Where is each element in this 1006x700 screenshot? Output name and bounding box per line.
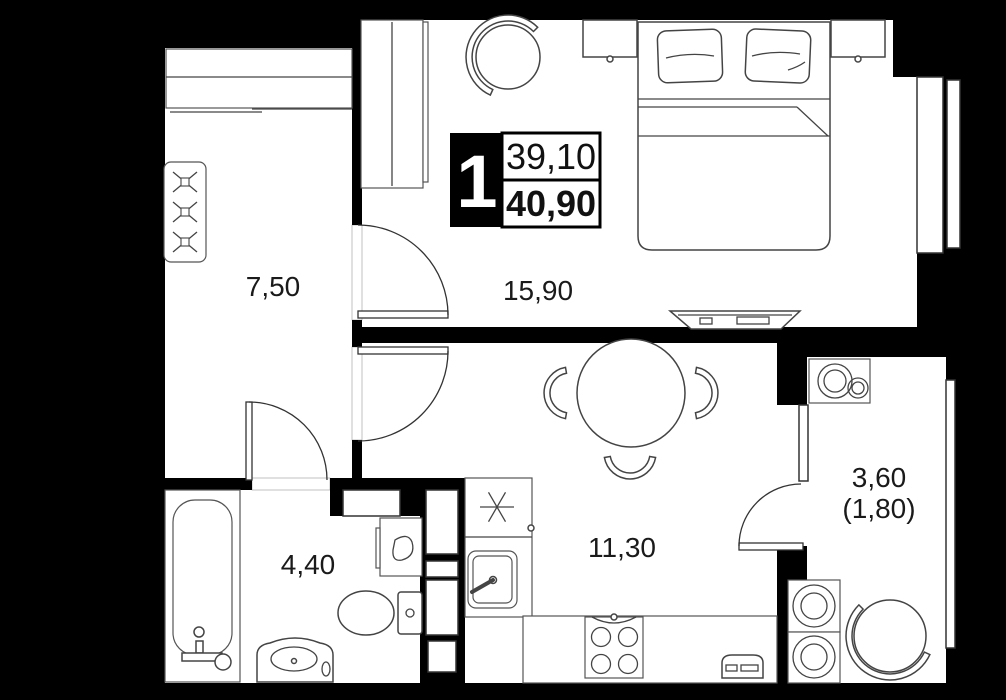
balcony-armchair-icon xyxy=(854,600,926,672)
floor-plan: 7,50 15,90 4,40 11,30 3,60 (1,80) 1 39,1… xyxy=(0,0,1006,700)
pillow-icon xyxy=(657,29,723,83)
kitchen-area-label: 11,30 xyxy=(588,532,656,563)
nightstand-knob xyxy=(855,56,861,62)
nightstand-knob xyxy=(607,56,613,62)
dryer-icon xyxy=(788,632,840,683)
bedroom-area-label: 15,90 xyxy=(503,275,573,306)
bathroom-niche xyxy=(343,490,400,516)
bedroom-window-icon xyxy=(917,77,943,253)
wardrobe-side-panel xyxy=(423,22,428,182)
bathroom-cabinet-icon xyxy=(380,518,422,576)
vanity-drain xyxy=(292,659,297,664)
wall-niche-right xyxy=(400,490,422,516)
wall-balcony-pillar-upper xyxy=(777,327,807,405)
balcony-door-opening xyxy=(777,484,807,546)
floor-plan-canvas: 7,50 15,90 4,40 11,30 3,60 (1,80) 1 39,1… xyxy=(0,0,1006,700)
dining-table-icon xyxy=(577,339,685,447)
shaft-box xyxy=(426,490,458,554)
shaft-box xyxy=(428,641,456,672)
corridor-door-icon xyxy=(358,347,448,354)
nightstand-icon xyxy=(583,20,637,57)
wall-bathroom-top-left xyxy=(165,478,252,490)
stove-icon xyxy=(585,617,643,678)
bedroom-window-outer-icon xyxy=(947,80,960,248)
wall-balcony-strip xyxy=(777,583,788,683)
radiator-icon xyxy=(722,655,763,678)
hallway-area-label: 7,50 xyxy=(246,271,301,302)
bathtub-faucet-stem xyxy=(196,641,203,653)
badge-total-area: 40,90 xyxy=(506,183,596,224)
armchair-icon xyxy=(476,25,540,89)
wall-bathroom-top-right xyxy=(330,478,465,490)
stove-knob xyxy=(611,614,617,620)
corridor-door-opening xyxy=(352,347,362,440)
bedroom-door-opening xyxy=(352,225,362,320)
bathtub-faucet-knob xyxy=(215,654,231,670)
wall-hall-lower-stub xyxy=(352,440,362,478)
bathroom-door-icon xyxy=(246,402,252,480)
bathtub-drain xyxy=(194,627,204,637)
bathroom-area-label: 4,40 xyxy=(281,549,336,580)
wall-balcony-pillar-lower xyxy=(777,546,807,583)
counter-knob xyxy=(528,525,534,531)
toilet-tank xyxy=(398,592,422,634)
bathroom-cabinet-side xyxy=(376,528,380,568)
hall-closet-icon xyxy=(166,49,352,108)
balcony-area-reduced-label: (1,80) xyxy=(842,493,915,524)
badge-living-area: 39,10 xyxy=(506,136,596,177)
balcony-area-label: 3,60 xyxy=(852,462,907,493)
pillow-icon xyxy=(745,29,811,84)
washing-machine-icon xyxy=(788,580,840,632)
bedroom-door-icon xyxy=(358,311,448,318)
kitchen-balcony-window-icon xyxy=(799,405,808,481)
badge-room-count: 1 xyxy=(456,140,497,223)
tv-icon xyxy=(670,311,800,329)
nightstand-icon xyxy=(831,20,885,57)
apartment-badge: 1 39,10 40,90 xyxy=(450,133,600,227)
bathroom-door-opening xyxy=(252,478,330,490)
wall-bedroom-corner xyxy=(893,20,917,77)
shaft-box xyxy=(426,561,458,577)
balcony-door-icon xyxy=(739,543,803,550)
wall-niche-left xyxy=(330,490,343,516)
toilet-icon xyxy=(338,591,394,635)
balcony-glazing-icon xyxy=(946,380,955,648)
shaft-box xyxy=(426,580,458,635)
